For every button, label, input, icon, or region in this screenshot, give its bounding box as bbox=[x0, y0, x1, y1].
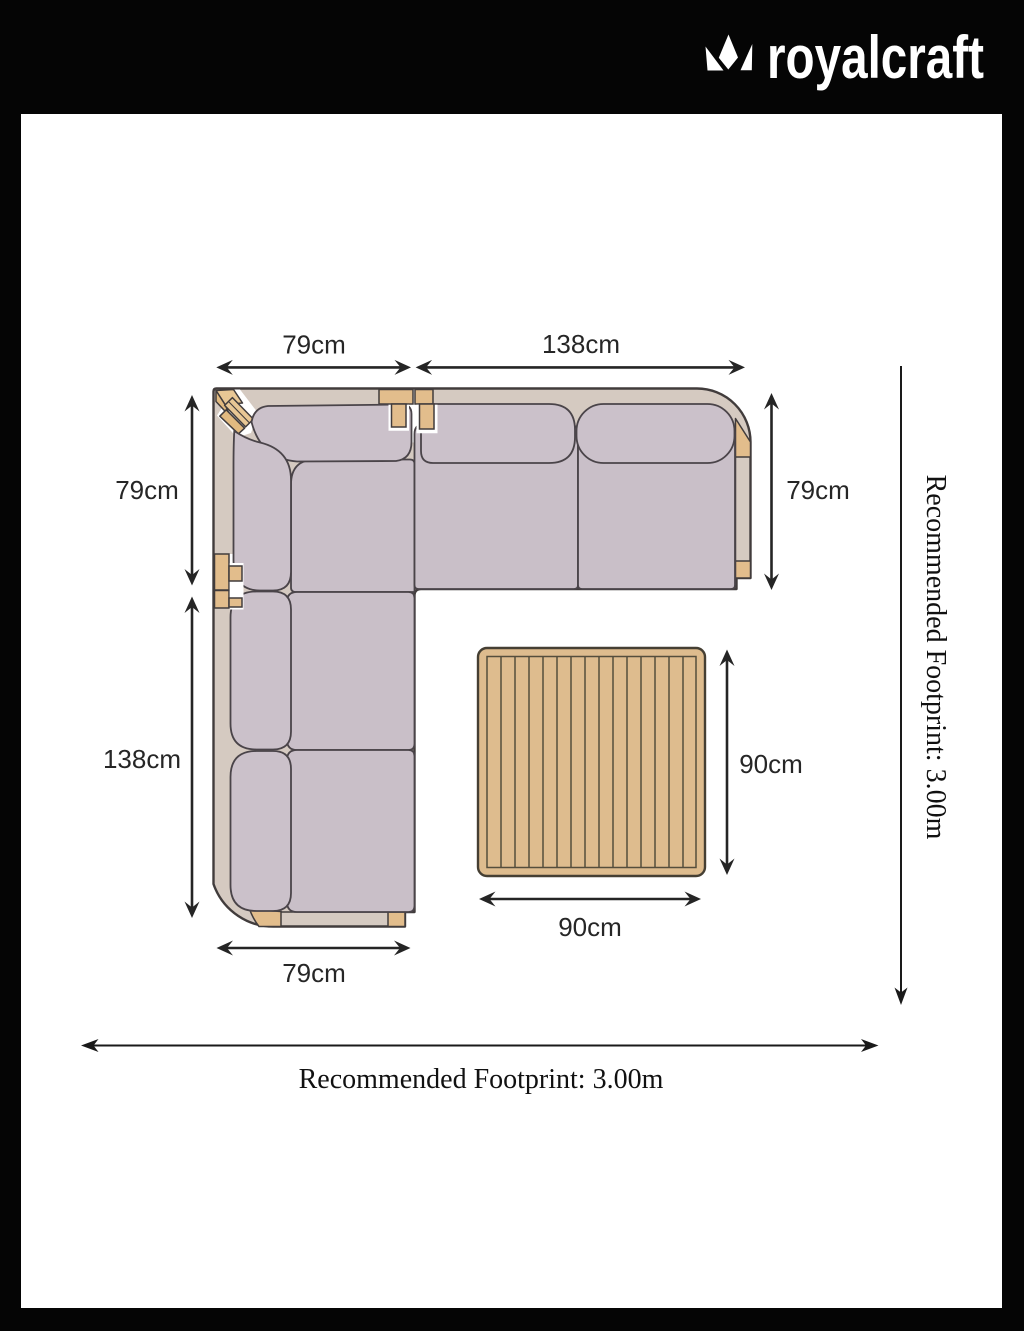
svg-text:90cm: 90cm bbox=[739, 749, 803, 779]
svg-text:royalcraft: royalcraft bbox=[767, 24, 984, 91]
svg-text:79cm: 79cm bbox=[115, 475, 179, 505]
svg-text:90cm: 90cm bbox=[558, 912, 622, 942]
svg-text:138cm: 138cm bbox=[103, 744, 181, 774]
svg-text:Recommended Footprint: 3.00m: Recommended Footprint: 3.00m bbox=[299, 1064, 664, 1095]
svg-text:Recommended Footprint: 3.00m: Recommended Footprint: 3.00m bbox=[920, 475, 951, 840]
svg-text:79cm: 79cm bbox=[786, 475, 850, 505]
svg-text:79cm: 79cm bbox=[282, 330, 346, 360]
svg-text:138cm: 138cm bbox=[542, 329, 620, 359]
svg-text:79cm: 79cm bbox=[282, 958, 346, 988]
